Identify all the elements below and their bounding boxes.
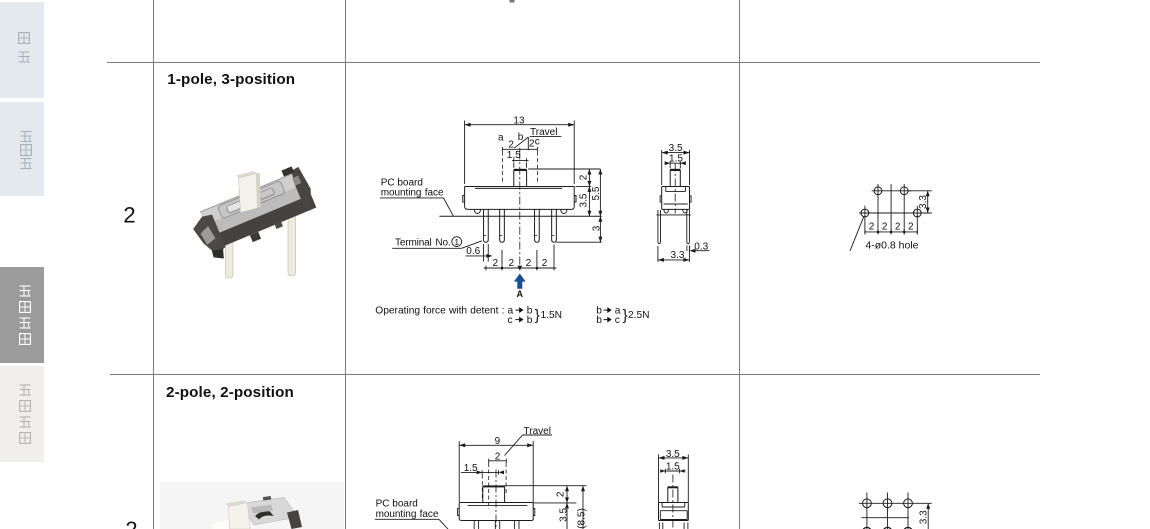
- svg-text:0.3: 0.3: [694, 241, 708, 252]
- svg-text:1.5: 1.5: [669, 153, 683, 164]
- svg-text:c: c: [535, 136, 540, 147]
- svg-text:c: c: [508, 315, 513, 326]
- svg-text:13: 13: [513, 116, 525, 127]
- svg-text:2: 2: [493, 258, 499, 269]
- svg-text:2: 2: [529, 139, 535, 150]
- svg-text:3.5: 3.5: [579, 193, 590, 207]
- svg-text:2: 2: [123, 203, 135, 228]
- svg-text:}: }: [535, 307, 540, 324]
- svg-text:2: 2: [125, 517, 137, 529]
- svg-text:2: 2: [908, 221, 914, 232]
- svg-text:3.3: 3.3: [671, 250, 685, 261]
- svg-text:2: 2: [555, 491, 566, 497]
- svg-text:Operating force with detent :: Operating force with detent :: [375, 306, 504, 317]
- svg-text:2: 2: [869, 221, 875, 232]
- svg-text:2-pole, 2-position: 2-pole, 2-position: [166, 384, 294, 401]
- svg-text:2: 2: [882, 221, 888, 232]
- svg-text:3.3: 3.3: [919, 510, 930, 524]
- svg-text:2: 2: [579, 174, 590, 180]
- svg-text:mounting face: mounting face: [381, 187, 444, 198]
- svg-text:b: b: [518, 132, 524, 143]
- svg-text:1-pole, 3-position: 1-pole, 3-position: [167, 71, 295, 88]
- svg-text:0.6: 0.6: [466, 246, 480, 257]
- svg-text:Terminal No.: Terminal No.: [395, 237, 451, 248]
- svg-text:4-ø0.8 hole: 4-ø0.8 hole: [865, 239, 918, 251]
- svg-text:1.5N: 1.5N: [541, 310, 563, 321]
- svg-text:b: b: [527, 315, 533, 326]
- svg-text:b: b: [596, 315, 602, 326]
- svg-text:3.5: 3.5: [559, 508, 570, 522]
- svg-text:a: a: [498, 133, 504, 144]
- svg-text:3.3: 3.3: [918, 195, 929, 209]
- svg-text:2: 2: [895, 221, 901, 232]
- svg-text:(8.5): (8.5): [577, 508, 588, 529]
- svg-text:}: }: [623, 307, 628, 324]
- svg-text:2: 2: [526, 258, 532, 269]
- svg-text:3: 3: [591, 225, 602, 231]
- svg-text:5.5: 5.5: [591, 186, 602, 200]
- svg-text:2: 2: [509, 258, 515, 269]
- svg-text:2.5N: 2.5N: [628, 310, 650, 321]
- svg-text:c: c: [615, 315, 620, 326]
- svg-text:1: 1: [454, 237, 459, 247]
- svg-text:2: 2: [542, 258, 548, 269]
- svg-text:A: A: [517, 289, 524, 299]
- svg-text:mounting face: mounting face: [376, 509, 439, 520]
